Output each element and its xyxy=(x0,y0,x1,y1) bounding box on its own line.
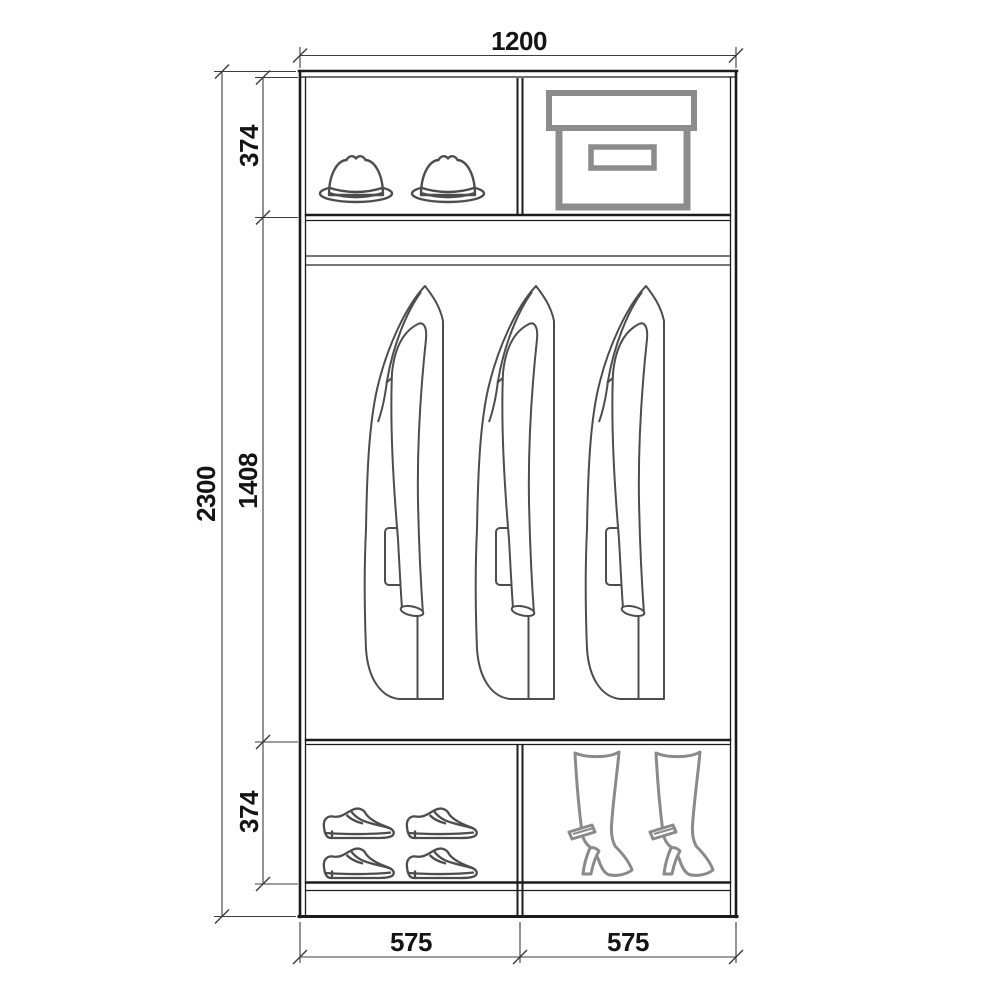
dim-label-overall-width: 1200 xyxy=(491,28,547,54)
hat-icon xyxy=(320,156,392,202)
wardrobe-line-art xyxy=(0,0,1000,1000)
coat-icon xyxy=(476,286,554,699)
dim-label-bottom-section-height: 374 xyxy=(236,791,262,833)
shoe-icon xyxy=(324,809,394,838)
dim-compartment-widths xyxy=(293,922,743,964)
dim-label-right-compartment-width: 575 xyxy=(607,929,649,955)
hat-icon xyxy=(412,156,484,202)
dim-label-left-compartment-width: 575 xyxy=(390,929,432,955)
dim-label-overall-height: 2300 xyxy=(193,466,219,522)
shoe-icon xyxy=(407,849,477,878)
dim-label-top-section-height: 374 xyxy=(236,125,262,167)
shoe-icon xyxy=(324,849,394,878)
coat-icon xyxy=(365,286,443,699)
dim-label-middle-section-height: 1408 xyxy=(235,453,261,509)
boot-icon xyxy=(650,752,713,875)
shoe-icon xyxy=(407,809,477,838)
storage-box-icon xyxy=(549,93,694,207)
hanging-rail xyxy=(306,256,730,265)
boot-icon xyxy=(569,752,632,875)
coat-icon xyxy=(586,286,664,699)
wardrobe-drawing: 1200 2300 374 1408 374 575 575 xyxy=(0,0,1000,1000)
